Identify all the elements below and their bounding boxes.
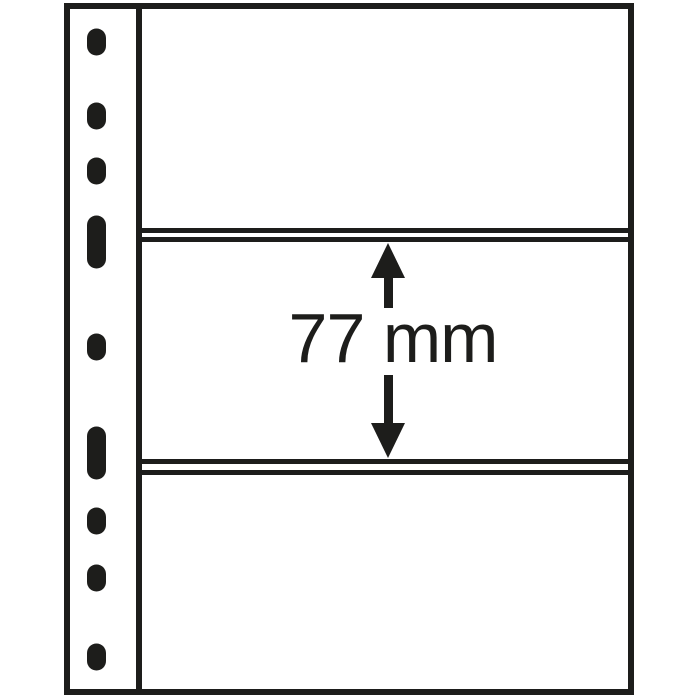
punch-hole-icon (87, 565, 106, 592)
punch-slot-icon (87, 216, 106, 269)
pocket-1 (142, 9, 629, 228)
punch-hole-icon (87, 29, 106, 56)
dimension-arrow-down-icon (371, 423, 405, 458)
punch-hole-icon (87, 508, 106, 535)
pocket-divider-1-bottom-line (139, 237, 631, 242)
pocket-3 (142, 475, 629, 689)
pocket-divider-2-top-line (139, 459, 631, 464)
dimension-label: 77 mm (289, 303, 498, 373)
punch-hole-icon (87, 644, 106, 671)
punch-hole-icon (87, 334, 106, 361)
punch-strip (0, 0, 142, 700)
dimension-arrow-up-icon (371, 243, 405, 278)
pocket-divider-2-bottom-line (139, 470, 631, 475)
pocket-divider-1-top-line (139, 228, 631, 233)
dimension-arrow-down-shaft (384, 375, 393, 425)
punch-hole-icon (87, 158, 106, 185)
punch-slot-icon (87, 427, 106, 480)
product-illustration: 77 mm (0, 0, 700, 700)
punch-hole-icon (87, 103, 106, 130)
